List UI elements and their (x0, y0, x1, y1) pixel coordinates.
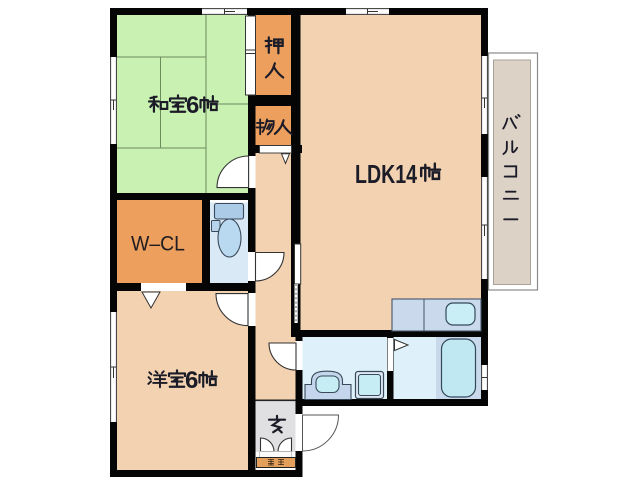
svg-text:6: 6 (186, 92, 199, 119)
svg-text:6: 6 (185, 367, 198, 394)
svg-text:LDK14: LDK14 (355, 159, 417, 189)
svg-text:W–CL: W–CL (131, 233, 185, 256)
